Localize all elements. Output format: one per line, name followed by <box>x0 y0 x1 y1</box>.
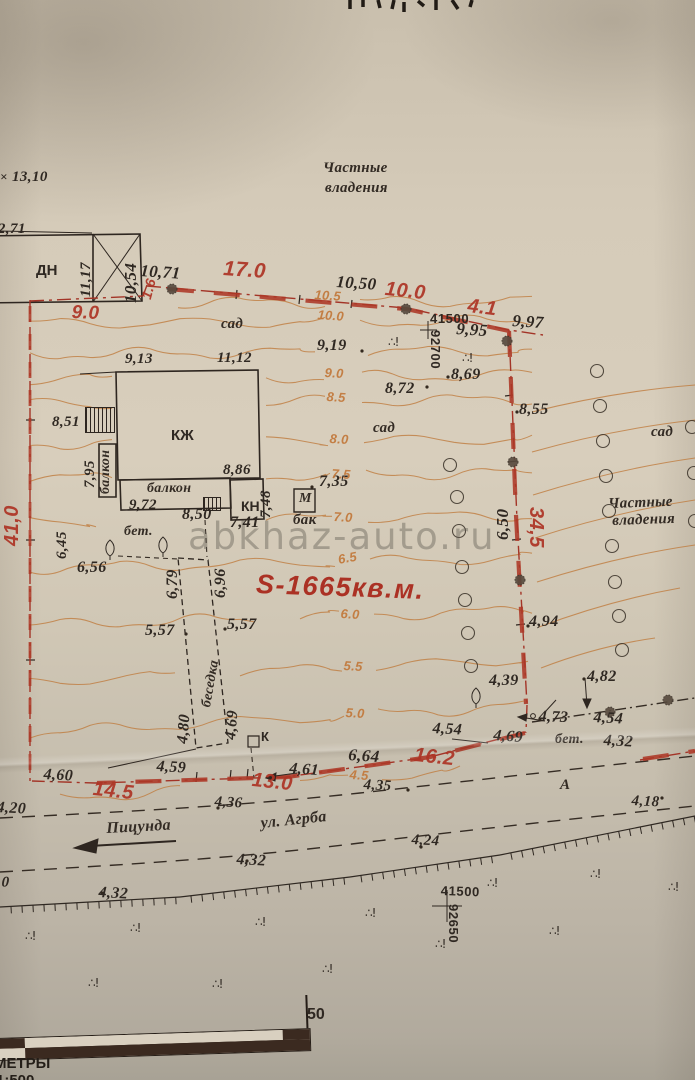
plot-area-label: S-1665кв.м. <box>256 569 426 606</box>
elevation-label: 6,96 <box>213 568 229 598</box>
contour-label: 10.5 <box>314 288 341 303</box>
dimension-label-red: 13.0 <box>251 770 294 794</box>
elevation-label: 8,51 <box>52 415 80 430</box>
elevation-label: 7,48 <box>259 490 274 518</box>
vegetation-symbol-icon: ∴! <box>255 916 265 928</box>
contour-label: 7.0 <box>333 510 353 524</box>
place-label: бак <box>293 513 317 528</box>
elevation-label: 4,82 <box>587 669 617 685</box>
elevation-label: 4,94 <box>529 614 559 630</box>
place-label: бет. <box>124 525 153 539</box>
dimension-label-red: 17.0 <box>223 258 267 282</box>
stairs-icon <box>85 407 115 433</box>
elevation-label: 5,57 <box>227 617 257 633</box>
place-label: сад <box>373 421 395 436</box>
elevation-dot <box>446 375 449 378</box>
cypress-tree-icon <box>159 537 167 553</box>
elevation-label: 8,55 <box>519 402 549 418</box>
contour-label: 6.5 <box>337 550 358 566</box>
tree-circle-icon <box>451 491 464 504</box>
place-label: М <box>299 492 312 506</box>
map-label: ДН <box>36 263 58 278</box>
tree-circle-icon <box>686 421 695 434</box>
grid-coordinate-label: 92700 <box>429 330 442 369</box>
elevation-label: 10 <box>0 875 10 891</box>
elevation-label: 4,36 <box>214 795 243 811</box>
tree-circle-icon <box>689 515 695 528</box>
scalebar-units-label: МЕТРЫ <box>0 1055 50 1072</box>
elevation-label: 4,73 <box>538 709 568 726</box>
vegetation-symbol-icon: ∴! <box>435 938 445 950</box>
elevation-label: 4,32 <box>98 885 128 903</box>
elevation-label: 11,17 <box>79 262 94 297</box>
elevation-label: 9,13 <box>125 352 153 367</box>
survey-point-icon <box>167 284 177 294</box>
map-label: К <box>261 730 269 743</box>
tree-circle-icon <box>609 576 622 589</box>
tree-circle-icon <box>613 610 626 623</box>
elevation-label: 10,54 <box>122 263 139 303</box>
elevation-label: 4,54 <box>432 721 462 739</box>
tree-circle-icon <box>594 400 607 413</box>
elevation-label: 8,86 <box>223 463 251 478</box>
elevation-dot <box>360 349 363 352</box>
survey-point-icon <box>515 575 525 585</box>
elevation-label: 4,18 <box>631 794 660 810</box>
elevation-label: 9,72 <box>129 498 157 513</box>
elevation-label: 9,19 <box>317 338 347 354</box>
survey-point-icon <box>508 457 518 467</box>
tree-circle-icon <box>465 660 478 673</box>
tree-circle-icon <box>606 540 619 553</box>
vegetation-symbol-icon: ∴! <box>88 977 98 989</box>
map-label: 50 <box>307 1007 325 1023</box>
contour-label: 8.5 <box>326 390 346 404</box>
direction-arrow-head <box>74 839 98 853</box>
elevation-label: 7,41 <box>230 515 260 531</box>
place-label: балкон <box>99 450 113 494</box>
elevation-dot <box>582 677 585 680</box>
map-label: КН <box>241 499 260 513</box>
elevation-label: 6,45 <box>55 531 70 559</box>
survey-plan-sheet: abkhaz-auto.ru S-1665кв.м. ×13,1012,71ДН… <box>0 0 695 1080</box>
elevation-label: 4,32 <box>236 852 266 870</box>
map-label: КЖ <box>171 428 194 443</box>
grid-coordinate-label: 41500 <box>430 312 469 325</box>
elevation-label: 8,69 <box>451 367 481 383</box>
vegetation-symbol-icon: ∴! <box>487 877 497 889</box>
tree-circle-icon <box>688 467 695 480</box>
elevation-label: 4,54 <box>593 710 623 728</box>
vegetation-symbol-icon: ∴! <box>462 352 472 364</box>
contour-label: 9.0 <box>324 366 344 380</box>
elevation-label: 10,50 <box>336 273 377 293</box>
place-label: Частные <box>608 495 673 512</box>
dimension-label-red: 34,5 <box>526 507 546 548</box>
vegetation-symbol-icon: ∴! <box>25 930 35 942</box>
place-label: балкон <box>147 482 191 496</box>
elevation-label: 8,72 <box>385 381 415 397</box>
elevation-label: 12,71 <box>0 222 26 237</box>
contour-label: 6.0 <box>340 607 360 621</box>
dimension-label-red: 4.1 <box>467 296 499 319</box>
place-label: владения <box>325 181 388 196</box>
contour-label: 7.5 <box>331 467 351 481</box>
place-label: Пицунда <box>106 818 171 837</box>
vegetation-symbol-icon: ∴! <box>365 907 375 919</box>
place-label: владения <box>612 512 675 529</box>
dimension-label-red: 9.0 <box>71 303 100 323</box>
elevation-label: 4,39 <box>489 673 519 689</box>
vegetation-symbol-icon: ∴! <box>212 978 222 990</box>
tree-circle-icon <box>444 459 457 472</box>
grid-coordinate-label: 92650 <box>447 904 460 943</box>
contour-label: 4.5 <box>349 768 369 782</box>
elevation-label: 7,95 <box>83 460 98 488</box>
dimension-label-red: 41,0 <box>2 505 22 546</box>
vegetation-symbol-icon: ∴! <box>668 881 678 893</box>
dimension-label-red: 10.0 <box>384 279 427 303</box>
dimension-label-red: 14.5 <box>92 779 135 803</box>
contour-label: 10.0 <box>317 308 344 323</box>
elevation-label: 4,80 <box>175 714 194 745</box>
survey-point-icon <box>663 695 673 705</box>
contour-label: 8.0 <box>329 432 349 446</box>
scalebar-ratio-label: 1:500 <box>0 1072 34 1080</box>
survey-point-icon <box>401 304 411 314</box>
cypress-tree-icon <box>106 540 114 556</box>
contour-label: 5.0 <box>345 706 365 720</box>
elevation-label: 11,12 <box>217 351 252 366</box>
elevation-dot <box>310 485 313 488</box>
elevation-label: 5,57 <box>145 623 175 639</box>
survey-point-icon <box>502 336 512 346</box>
tree-circle-icon <box>616 644 629 657</box>
elevation-dot <box>184 632 187 635</box>
elevation-label: 6,56 <box>77 560 107 576</box>
elevation-label: 6,50 <box>494 509 511 540</box>
elevation-label: 9,97 <box>512 312 544 331</box>
place-label: сад <box>651 425 673 440</box>
elevation-label: × <box>0 170 8 183</box>
tree-circle-icon <box>597 435 610 448</box>
place-label: А <box>560 778 570 793</box>
elevation-label: 6,79 <box>165 569 181 599</box>
elevation-label: 4,20 <box>0 800 27 818</box>
contour-label: 5.5 <box>343 659 363 673</box>
elevation-label: 8,50 <box>182 507 212 523</box>
tree-circle-icon <box>591 365 604 378</box>
elevation-dot <box>406 788 409 791</box>
tree-circle-icon <box>459 594 472 607</box>
vegetation-symbol-icon: ∴! <box>388 336 398 348</box>
vegetation-symbol-icon: ∴! <box>590 868 600 880</box>
elevation-label: 13,10 <box>12 170 48 185</box>
tree-circle-icon <box>462 627 475 640</box>
elevation-label: 4,69 <box>223 710 242 741</box>
vegetation-symbol-icon: ∴! <box>549 925 559 937</box>
vegetation-symbol-icon: ∴! <box>130 922 140 934</box>
place-label: сад <box>221 317 243 332</box>
elevation-dot <box>425 385 428 388</box>
place-label: Частные <box>323 161 388 176</box>
cypress-tree-icon <box>472 688 480 704</box>
vegetation-symbol-icon: ∴! <box>322 963 332 975</box>
elevation-dot <box>660 796 663 799</box>
cropped-top-text-fragments <box>350 0 472 12</box>
elevation-label: 4,24 <box>411 833 440 849</box>
tree-circle-icon <box>456 561 469 574</box>
direction-arrow-picunda-icon <box>90 841 176 846</box>
grid-coordinate-label: 41500 <box>441 884 481 898</box>
